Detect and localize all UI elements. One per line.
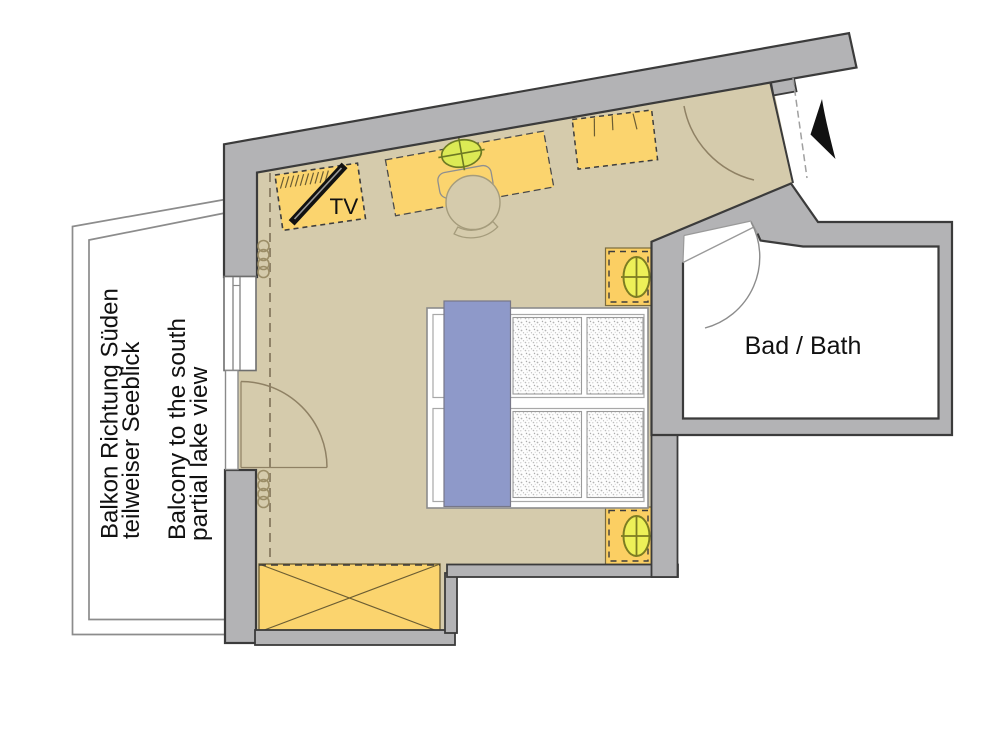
- svg-text:teilweiser Seeblick: teilweiser Seeblick: [118, 341, 145, 539]
- svg-text:TV: TV: [330, 194, 359, 219]
- svg-text:partial lake view: partial lake view: [186, 366, 213, 541]
- svg-text:Bad / Bath: Bad / Bath: [745, 332, 862, 360]
